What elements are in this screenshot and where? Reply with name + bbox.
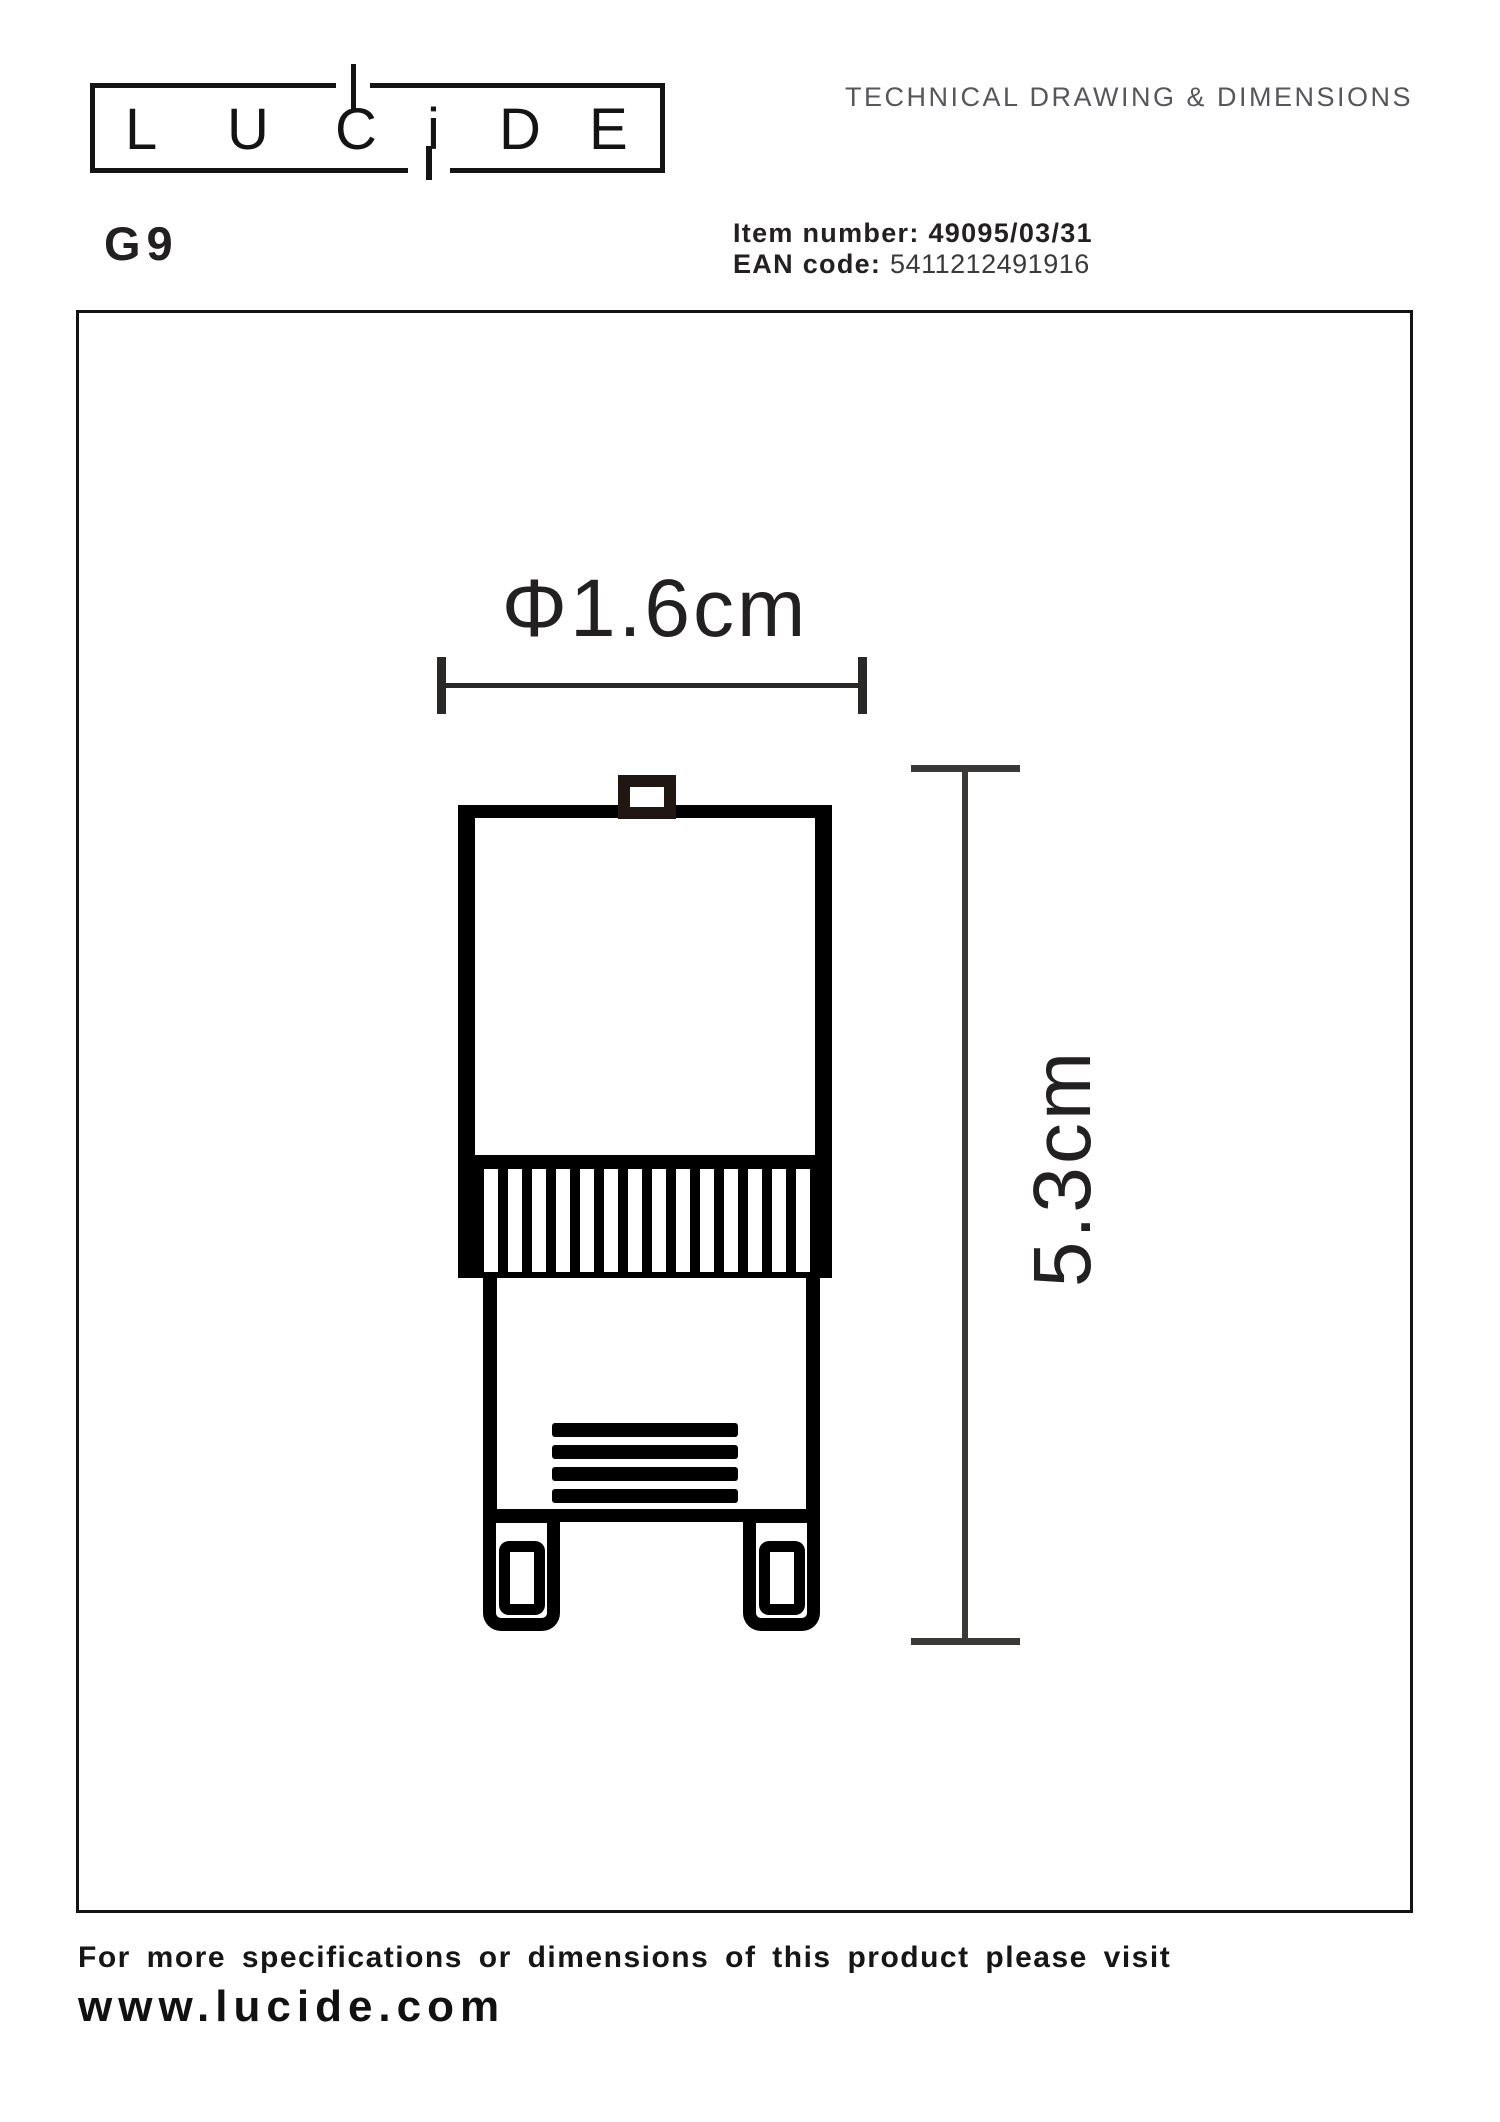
bulb-base — [483, 1278, 820, 1522]
website-url: www.lucide.com — [78, 1982, 505, 2032]
footer-note: For more specifications or dimensions of… — [78, 1941, 1171, 1975]
lucide-logo: L U C i D E — [90, 83, 665, 173]
height-dimension-tick-bottom — [911, 1638, 1020, 1645]
vent-slot — [552, 1467, 738, 1481]
product-identifiers: Item number: 49095/03/31 EAN code: 54112… — [733, 218, 1093, 280]
logo-c-accent-stem — [351, 64, 356, 110]
pin-right-hole — [759, 1541, 805, 1615]
bulb-glass-body — [458, 805, 832, 1155]
height-dimension-tick-top — [911, 765, 1020, 772]
logo-letter: E — [589, 88, 628, 168]
item-number-value: 49095/03/31 — [928, 218, 1092, 248]
height-dimension-line — [962, 768, 968, 1642]
product-code: G9 — [104, 216, 179, 271]
page: L U C i D E TECHNICAL DRAWING & DIMENSIO… — [0, 0, 1500, 2122]
ean-code-value: 5411212491916 — [890, 249, 1090, 279]
bulb-ribbed-section — [458, 1155, 832, 1278]
logo-i-descender-stem — [426, 146, 432, 180]
bulb-tip-seal — [618, 775, 676, 819]
width-dimension-tick-right — [858, 657, 867, 714]
logo-letter: D — [499, 88, 541, 168]
item-number-row: Item number: 49095/03/31 — [733, 218, 1093, 249]
item-number-label: Item number: — [733, 218, 920, 248]
height-dimension-label: 5.3cm — [1016, 1049, 1110, 1287]
width-dimension-line — [437, 683, 867, 688]
width-dimension-tick-left — [437, 657, 446, 714]
width-dimension-label: Φ1.6cm — [440, 562, 870, 656]
ean-code-row: EAN code: 5411212491916 — [733, 249, 1093, 280]
pin-left-hole — [499, 1541, 545, 1615]
logo-letter: L — [125, 88, 157, 168]
logo-letter: U — [227, 88, 269, 168]
page-title: TECHNICAL DRAWING & DIMENSIONS — [845, 82, 1413, 113]
vent-slot — [552, 1423, 738, 1437]
vent-slot — [552, 1445, 738, 1459]
ean-code-label: EAN code: — [733, 249, 881, 279]
vent-slot — [552, 1489, 738, 1503]
